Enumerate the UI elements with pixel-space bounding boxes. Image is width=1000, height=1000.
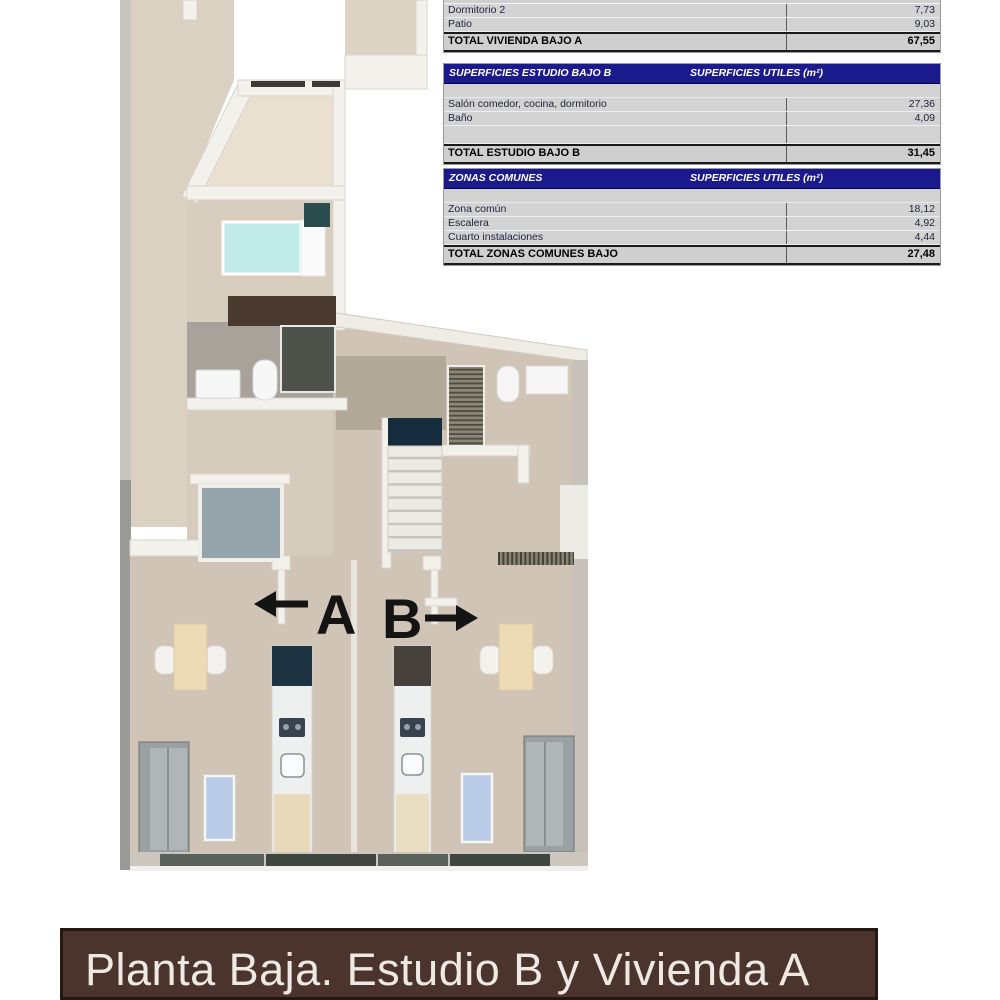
table-row: Cuarto instalaciones 4,44 xyxy=(444,231,940,245)
total-value: 67,55 xyxy=(786,34,940,50)
stair-landing xyxy=(388,418,442,446)
rug-a xyxy=(205,776,234,840)
sink-b xyxy=(526,366,568,394)
stair-steps xyxy=(388,446,442,552)
table-total-row: TOTAL VIVIENDA BAJO A 67,55 xyxy=(444,32,940,52)
row-label: Escalera xyxy=(444,217,786,230)
table-title: SUPERFICIES ESTUDIO BAJO B xyxy=(444,64,690,83)
units-header: SUPERFICIES UTILES (m²) xyxy=(690,169,940,188)
left-outer-wall xyxy=(120,0,131,480)
row-label: Zona común xyxy=(444,203,786,216)
rug-b xyxy=(462,774,492,842)
table-row-empty xyxy=(444,126,940,144)
table-title: ZONAS COMUNES xyxy=(444,169,690,188)
spacer-row xyxy=(444,189,940,203)
kitchen-island-a xyxy=(272,646,312,858)
patio-window-lintel xyxy=(251,81,305,87)
left-outer-wall-lower xyxy=(120,480,131,870)
shower-a xyxy=(281,326,335,392)
patio-window-lintel-2 xyxy=(312,81,340,87)
unit-a-label: A xyxy=(316,583,356,646)
storage-square xyxy=(200,486,282,560)
row-value: 4,92 xyxy=(786,217,940,230)
row-label: Cuarto instalaciones xyxy=(444,231,786,244)
right-wall-window xyxy=(560,485,588,559)
table-estudio-b: SUPERFICIES ESTUDIO BAJO B SUPERFICIES U… xyxy=(443,63,941,165)
sink-a xyxy=(196,370,240,398)
plan-title: Planta Baja. Estudio B y Vivienda A xyxy=(85,944,810,996)
table-total-row: TOTAL ZONAS COMUNES BAJO 27,48 xyxy=(444,245,940,265)
table-row: Zona común 18,12 xyxy=(444,203,940,217)
top-right-room-floor xyxy=(345,0,427,58)
total-label: TOTAL ESTUDIO BAJO B xyxy=(444,146,786,162)
units-header: SUPERFICIES UTILES (m²) xyxy=(690,64,940,83)
plan-title-bar: Planta Baja. Estudio B y Vivienda A xyxy=(60,928,878,1000)
floor-plan-sheet: A B Dormitorio 2 7,73 Patio 9,03 TOTAL V… xyxy=(0,0,1000,1000)
total-label: TOTAL ZONAS COMUNES BAJO xyxy=(444,247,786,263)
total-value: 31,45 xyxy=(786,146,940,162)
radiator xyxy=(498,552,574,565)
row-value: 4,09 xyxy=(786,112,940,125)
nightstand xyxy=(304,203,330,227)
table-header: SUPERFICIES ESTUDIO BAJO B SUPERFICIES U… xyxy=(444,64,940,84)
row-label: Dormitorio 2 xyxy=(444,4,786,17)
kitchen-island-b xyxy=(394,646,431,858)
row-value: 18,12 xyxy=(786,203,940,216)
bottom-facade xyxy=(130,852,588,871)
row-value: 4,44 xyxy=(786,231,940,244)
row-value: 7,73 xyxy=(786,4,940,17)
wardrobe xyxy=(228,296,336,326)
row-label: Salón comedor, cocina, dormitorio xyxy=(444,98,786,111)
sofa-a xyxy=(139,742,189,856)
toilet-a xyxy=(253,360,277,400)
table-row: Escalera 4,92 xyxy=(444,217,940,231)
table-vivienda-a: Dormitorio 2 7,73 Patio 9,03 TOTAL VIVIE… xyxy=(443,0,941,53)
spacer-row xyxy=(444,84,940,98)
row-value xyxy=(786,126,940,143)
table-row: Salón comedor, cocina, dormitorio 27,36 xyxy=(444,98,940,112)
table-total-row: TOTAL ESTUDIO BAJO B 31,45 xyxy=(444,144,940,164)
unit-b-label: B xyxy=(382,587,422,650)
table-row: Baño 4,09 xyxy=(444,112,940,126)
sofa-b xyxy=(524,736,574,852)
row-value: 27,36 xyxy=(786,98,940,111)
table-header: ZONAS COMUNES SUPERFICIES UTILES (m²) xyxy=(444,169,940,189)
bed xyxy=(223,222,301,274)
total-value: 27,48 xyxy=(786,247,940,263)
toilet-b xyxy=(497,366,519,402)
table-row: Patio 9,03 xyxy=(444,18,940,32)
row-label: Baño xyxy=(444,112,786,125)
row-label: Patio xyxy=(444,18,786,31)
stair-hatched xyxy=(448,366,484,446)
table-zonas-comunes: ZONAS COMUNES SUPERFICIES UTILES (m²) Zo… xyxy=(443,168,941,266)
row-value: 9,03 xyxy=(786,18,940,31)
total-label: TOTAL VIVIENDA BAJO A xyxy=(444,34,786,50)
bed-pillow xyxy=(301,220,325,276)
table-row: Dormitorio 2 7,73 xyxy=(444,4,940,18)
row-label xyxy=(444,126,786,143)
right-outer-wall xyxy=(573,360,588,858)
